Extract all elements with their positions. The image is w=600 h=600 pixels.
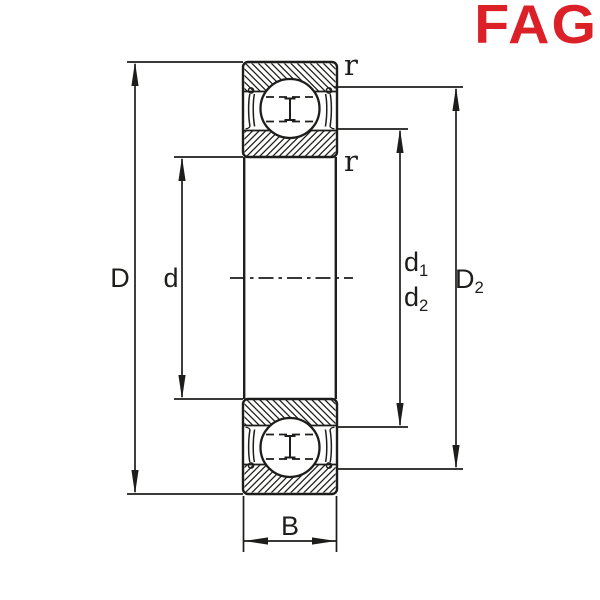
dim-label-r-bottom: r [344, 147, 358, 176]
left-shield [246, 88, 255, 129]
dim-label-r-top: r [344, 51, 358, 80]
arrowhead-down [396, 403, 403, 427]
arrowhead-up [452, 87, 459, 111]
brand-logo: FAG [474, 3, 598, 46]
arrowhead-down [131, 470, 138, 494]
arrowhead-up [178, 157, 185, 181]
bearing-top-section [243, 62, 337, 157]
right-shield [325, 88, 334, 129]
dim-label-D2: D2 [455, 266, 484, 293]
dim-label-d2: d2 [404, 284, 428, 311]
bearing-bottom-section [243, 399, 337, 494]
dim-label-d1: d1 [404, 249, 428, 276]
bearing-drawing-canvas: D d d1 d2 D2 B r r FAG [0, 0, 600, 600]
arrowhead-down [452, 445, 459, 469]
arrowhead-left [244, 537, 268, 544]
arrowhead-down [178, 375, 185, 399]
bearing-technical-drawing [0, 0, 600, 600]
arrowhead-right [312, 537, 336, 544]
arrowhead-up [131, 62, 138, 86]
arrowhead-up [396, 129, 403, 153]
dim-label-D: D [105, 265, 135, 292]
dim-label-d: d [156, 265, 186, 292]
dim-label-B: B [275, 513, 305, 540]
